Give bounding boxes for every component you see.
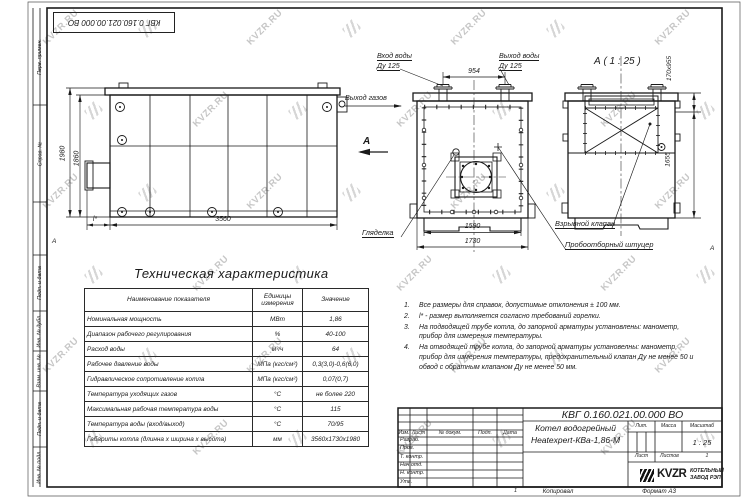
zone-marker-left: А <box>52 239 56 246</box>
strip-label: Взам. инв. № <box>37 354 43 387</box>
spec-name: Диапазон рабочего регулирования <box>85 327 253 342</box>
dim-height-inner: 1860 <box>74 150 81 166</box>
gas-outlet-label: Выход газов <box>345 94 387 101</box>
side-dimension-lines <box>66 88 337 230</box>
spec-unit: °С <box>253 417 303 432</box>
burner-flange <box>451 153 501 198</box>
strip-cell <box>33 202 47 255</box>
change-col-izm: Изм. <box>398 431 410 436</box>
role-tkontr: Т. контр. <box>400 455 423 460</box>
company-name-line1: КОТЕЛЬНЫЙ <box>690 469 724 474</box>
fitting-cross-mark <box>494 143 502 151</box>
spec-value: 0,07(0,7) <box>303 372 369 387</box>
sight-glass-mark <box>453 149 459 155</box>
role-nachotd: Нач.отд. <box>400 463 423 468</box>
copied-num: 1 <box>514 489 517 495</box>
spec-name: Максимальная рабочая температура воды <box>85 402 253 417</box>
change-col-list: Лист <box>410 431 427 436</box>
spec-value: 115 <box>303 402 369 417</box>
copied-label: Копировал <box>526 489 590 495</box>
spec-header: Единицы измерения <box>253 289 303 312</box>
section-dimension-lines <box>675 93 701 218</box>
spec-row: Гидравлическое сопротивление котлаМПа (к… <box>85 372 369 387</box>
sheets-label: Листов <box>660 454 679 459</box>
strip-cell: Подп. и дата <box>33 391 47 447</box>
note-item: 4.На отводящей трубе котла, до запорной … <box>404 343 696 372</box>
spec-table: Наименование показателя Единицы измерени… <box>84 288 369 447</box>
note-number: 2. <box>404 312 419 322</box>
role-nkontr: Н. контр. <box>400 471 424 476</box>
strip-cell: Подп. и дата <box>33 255 47 311</box>
strip-label: Инв. № дубл. <box>37 314 43 347</box>
water-inlet-label: Вход воды <box>377 52 412 61</box>
spec-name: Температура воды (вход/выход) <box>85 417 253 432</box>
water-inlet-dn-label: Ду 125 <box>377 62 400 71</box>
lit-label: Лит. <box>628 424 655 429</box>
spec-row: Температура воды (вход/выход)°С70/95 <box>85 417 369 432</box>
spec-value: 1,86 <box>303 312 369 327</box>
note-number: 1. <box>404 301 419 311</box>
dim-valve-size: 170х955 <box>666 56 673 81</box>
notes-list: 1.Все размеры для справок, допустимые от… <box>404 301 696 374</box>
spec-name: Рабочее давление воды <box>85 357 253 372</box>
spec-row: Максимальная рабочая температура воды°С1… <box>85 402 369 417</box>
format-label: Формат А3 <box>638 489 680 495</box>
boiler-side-view <box>66 83 347 230</box>
spec-table-title: Техническая характеристика <box>134 267 328 280</box>
top-designation-box: КВГ 0.160.021.00.000 ВО <box>53 12 175 33</box>
spec-unit: °С <box>253 387 303 402</box>
spec-unit: мм <box>253 432 303 447</box>
sight-glass-label: Гляделка <box>362 229 394 238</box>
note-text: l* - размер выполняется согласно требова… <box>419 312 696 322</box>
company-logo-icon <box>640 469 654 482</box>
role-utv: Утв. <box>400 480 412 485</box>
spec-header-row: Наименование показателя Единицы измерени… <box>85 289 369 312</box>
spec-name: Температура уходящих газов <box>85 387 253 402</box>
spec-value: 64 <box>303 342 369 357</box>
side-dim-arrows <box>68 88 337 227</box>
zone-marker-right: А <box>710 246 714 253</box>
product-name-line2: Heatexpert-КВа-1,86-М <box>523 436 628 445</box>
spec-value: 0,3(3,0)-0,6(6,0) <box>303 357 369 372</box>
spec-row: Температура уходящих газов°Сне более 220 <box>85 387 369 402</box>
strip-cell: Инв. № дубл. <box>33 311 47 351</box>
spec-row: Диапазон рабочего регулирования%40-100 <box>85 327 369 342</box>
dim-burner: l* <box>89 216 101 223</box>
strip-label: Подп. и дата <box>37 402 43 436</box>
spec-name: Расход воды <box>85 342 253 357</box>
spec-value: 40-100 <box>303 327 369 342</box>
view-a-label: А <box>363 137 370 147</box>
spec-value: 3560х1730х1980 <box>303 432 369 447</box>
change-col-data: Дата <box>497 431 523 436</box>
change-col-docnum: № докум. <box>427 431 473 436</box>
dim-pipe-spacing: 954 <box>460 68 488 75</box>
spec-name: Габариты котла (длинна х ширина х высота… <box>85 432 253 447</box>
spec-unit: МВт <box>253 312 303 327</box>
explosion-valve-label: Взрывной клапан <box>555 220 615 229</box>
note-item: 3.На подводящей трубе котла, до запорной… <box>404 323 696 343</box>
spec-value: 70/95 <box>303 417 369 432</box>
spec-row: Расход водым³/ч64 <box>85 342 369 357</box>
company-name-line2: ЗАВОД РЭП <box>690 476 721 481</box>
strip-label: Справ. № <box>37 141 43 166</box>
spec-row: Номинальная мощностьМВт1,86 <box>85 312 369 327</box>
spec-unit: °С <box>253 402 303 417</box>
spec-unit: м³/ч <box>253 342 303 357</box>
dim-section-height: 1655 <box>665 152 672 166</box>
role-prov: Пров. <box>400 446 414 451</box>
note-item: 2.l* - размер выполняется согласно требо… <box>404 312 696 322</box>
sheet-label: Лист <box>628 454 655 459</box>
spec-row: Рабочее давление водыМПа (кгс/см²)0,3(3,… <box>85 357 369 372</box>
valve-leader-line <box>612 124 650 228</box>
strip-cell: Перв. примен. <box>33 8 47 105</box>
product-name-line1: Котел водогрейный <box>523 424 628 433</box>
note-text: На отводящей трубе котла, до запорной ар… <box>419 343 696 372</box>
dim-height-outer: 1980 <box>60 145 67 161</box>
dim-width-inner: 1590 <box>455 223 490 230</box>
drawing-sheet: KVZR.RUKVZR.RUKVZR.RUKVZR.RUKVZR.RUKVZR.… <box>0 0 750 500</box>
dim-length: 3560 <box>205 216 241 223</box>
sheets-value: 1 <box>696 454 718 459</box>
strip-label: Подп. и дата <box>37 266 43 300</box>
scale-value: 1 : 25 <box>682 439 722 447</box>
change-col-podp: Подп. <box>473 431 497 436</box>
spec-unit: % <box>253 327 303 342</box>
strip-cell: Инв. № подл. <box>33 447 47 487</box>
scale-label: Масштаб <box>682 424 722 429</box>
mass-label: Масса <box>655 424 682 429</box>
section-view-title: А ( 1 : 25 ) <box>594 57 641 67</box>
strip-cell: Справ. № <box>33 105 47 202</box>
strip-label: Инв. № подл. <box>37 450 43 483</box>
note-text: Все размеры для справок, допустимые откл… <box>419 301 696 311</box>
water-outlet-label: Выход воды <box>499 52 539 61</box>
dim-width-outer: 1730 <box>455 238 490 245</box>
top-designation-label: КВГ 0.160.021.00.000 ВО <box>68 18 161 27</box>
spec-name: Гидравлическое сопротивление котла <box>85 372 253 387</box>
note-item: 1.Все размеры для справок, допустимые от… <box>404 301 696 311</box>
spec-header: Наименование показателя <box>85 289 253 312</box>
water-outlet-dn-label: Ду 125 <box>499 62 522 71</box>
spec-unit: МПа (кгс/см²) <box>253 372 303 387</box>
spec-unit: МПа (кгс/см²) <box>253 357 303 372</box>
sampling-fitting-label: Пробоотборный штуцер <box>565 241 653 250</box>
spec-name: Номинальная мощность <box>85 312 253 327</box>
company-logo-text: KVZR <box>657 469 686 481</box>
spec-value: не более 220 <box>303 387 369 402</box>
note-number: 3. <box>404 323 419 343</box>
strip-cell: Взам. инв. № <box>33 351 47 391</box>
note-text: На подводящей трубе котла, до запорной а… <box>419 323 696 343</box>
note-number: 4. <box>404 343 419 372</box>
spec-header: Значение <box>303 289 369 312</box>
drawing-designation: КВГ 0.160.021.00.000 ВО <box>523 410 722 421</box>
spec-row: Габариты котла (длинна х ширина х высота… <box>85 432 369 447</box>
strip-label: Перв. примен. <box>37 39 43 75</box>
boiler-section-view <box>562 56 701 236</box>
role-razrab: Разраб. <box>400 438 420 443</box>
